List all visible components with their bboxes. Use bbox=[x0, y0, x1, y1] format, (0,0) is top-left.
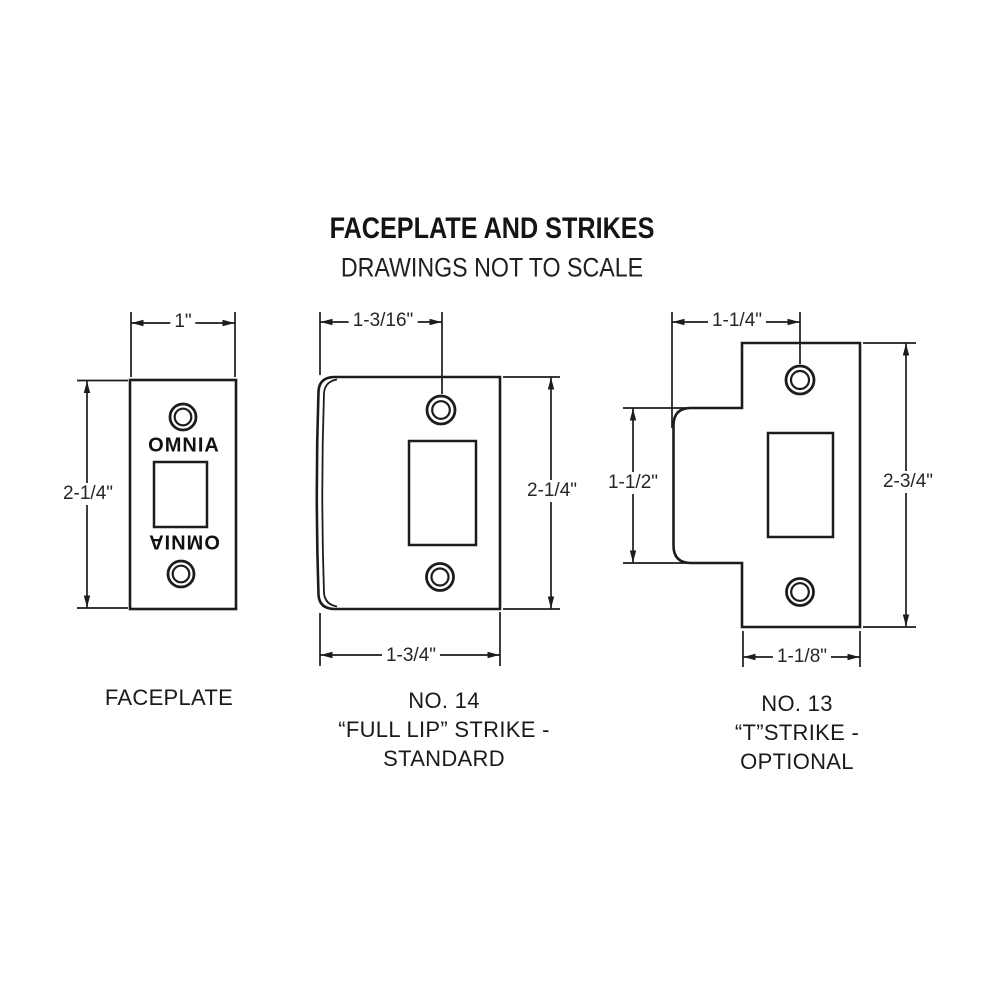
faceplate-engraving-bottom: OMNIA bbox=[148, 530, 220, 553]
strike14-height-dim: 2-1/4" bbox=[523, 480, 581, 502]
strike13-height-dim: 2-3/4" bbox=[879, 471, 937, 493]
faceplate-screw-hole-bottom-inner bbox=[173, 566, 190, 583]
strike13-caption-no: NO. 13 bbox=[761, 691, 833, 717]
strike13-latch-hole bbox=[768, 433, 833, 537]
page-subtitle: DRAWINGS NOT TO SCALE bbox=[341, 253, 643, 284]
faceplate-screw-hole-top-inner bbox=[175, 409, 192, 426]
faceplate-outline bbox=[130, 380, 236, 609]
strike13-screw-hole-top-inner bbox=[791, 371, 809, 389]
page: FACEPLATE AND STRIKES DRAWINGS NOT TO SC… bbox=[0, 0, 1000, 1000]
faceplate-engraving-top: OMNIA bbox=[148, 435, 220, 458]
faceplate-latch-hole bbox=[154, 462, 207, 527]
page-title: FACEPLATE AND STRIKES bbox=[330, 212, 655, 246]
strike13-caption-type: “T”STRIKE - bbox=[735, 720, 859, 746]
strike13-screw-hole-bottom-inner bbox=[791, 583, 809, 601]
faceplate-width-dim: 1" bbox=[170, 311, 195, 333]
faceplate-drawing bbox=[77, 312, 236, 609]
strike13-hole-offset-dim: 1-1/4" bbox=[708, 310, 766, 332]
full-lip-bend-line bbox=[322, 380, 337, 607]
strike14-hole-offset-dim: 1-3/16" bbox=[349, 310, 418, 332]
strike13-width-dim: 1-1/8" bbox=[773, 646, 831, 668]
strike14-caption-variant: STANDARD bbox=[383, 746, 505, 772]
strike13-caption-variant: OPTIONAL bbox=[740, 749, 854, 775]
strike13-lip-height-dim: 1-1/2" bbox=[604, 472, 662, 494]
t-strike-drawing bbox=[623, 312, 916, 667]
strike14-caption-no: NO. 14 bbox=[408, 688, 480, 714]
strike14-screw-hole-top-inner bbox=[432, 401, 450, 419]
technical-drawing-canvas bbox=[0, 0, 1000, 1000]
strike14-screw-hole-bottom-inner bbox=[432, 569, 449, 586]
strike14-width-dim: 1-3/4" bbox=[382, 645, 440, 667]
faceplate-height-dim: 2-1/4" bbox=[59, 483, 117, 505]
strike14-caption-type: “FULL LIP” STRIKE - bbox=[338, 717, 549, 743]
faceplate-caption: FACEPLATE bbox=[105, 685, 233, 711]
strike14-latch-hole bbox=[409, 441, 476, 545]
